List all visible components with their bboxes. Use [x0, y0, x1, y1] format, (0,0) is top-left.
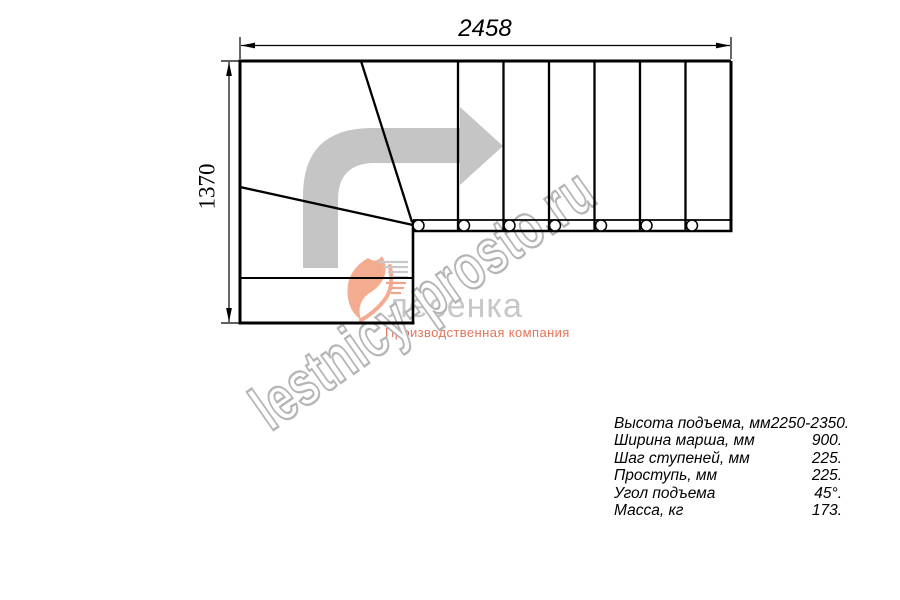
staircase-drawing-page: лесенка Производственная компания lestni…: [0, 0, 900, 600]
spec-label: Угол подъема: [614, 485, 715, 502]
spec-value: 225.: [812, 450, 842, 467]
dimension-lines: [221, 37, 731, 323]
spec-label: Шаг ступеней, мм: [614, 450, 750, 467]
spec-value: 45°.: [814, 485, 842, 502]
spec-label: Высота подъема, мм: [614, 415, 771, 432]
spec-row: Проступь, мм 225.: [614, 467, 842, 484]
spec-value: 2250-2350.: [771, 415, 849, 432]
spec-value: 173.: [812, 502, 842, 519]
spec-table: Высота подъема, мм 2250-2350. Ширина мар…: [614, 415, 842, 519]
spec-row: Шаг ступеней, мм 225.: [614, 450, 842, 467]
spec-row: Угол подъема 45°.: [614, 485, 842, 502]
spec-label: Ширина марша, мм: [614, 432, 755, 449]
spec-value: 900.: [812, 432, 842, 449]
spec-label: Масса, кг: [614, 502, 683, 519]
spec-row: Масса, кг 173.: [614, 502, 842, 519]
spec-value: 225.: [812, 467, 842, 484]
direction-arrow-icon: [303, 107, 503, 268]
dimension-width-label: 2458: [435, 15, 535, 42]
spec-row: Ширина марша, мм 900.: [614, 432, 842, 449]
spec-row: Высота подъема, мм 2250-2350.: [614, 415, 842, 432]
spec-label: Проступь, мм: [614, 467, 717, 484]
dimension-height-label: 1370: [195, 137, 220, 237]
baluster-circles: [413, 220, 698, 231]
